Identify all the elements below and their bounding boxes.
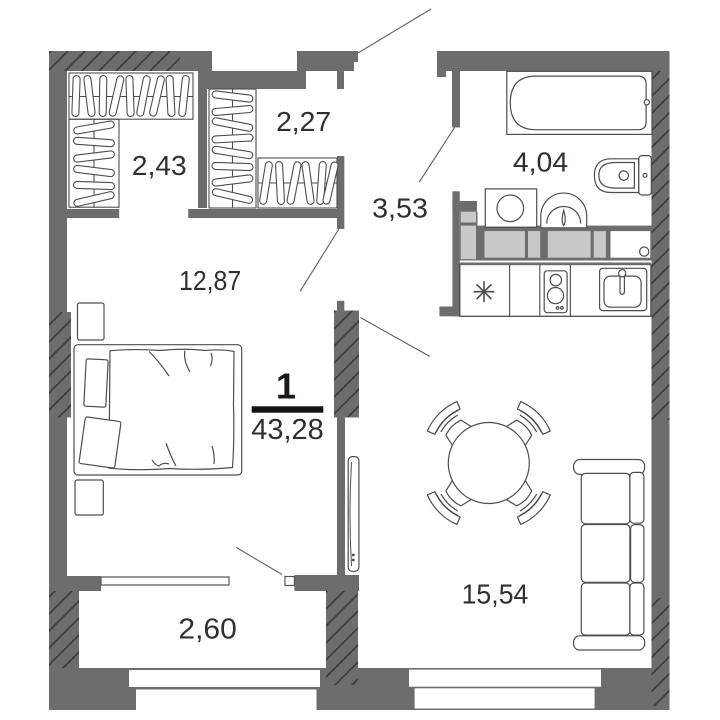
svg-text:2,60: 2,60 — [178, 614, 236, 646]
svg-text:1: 1 — [276, 365, 296, 406]
svg-text:3,53: 3,53 — [372, 193, 428, 224]
svg-text:15,54: 15,54 — [462, 579, 529, 610]
svg-text:12,87: 12,87 — [179, 265, 241, 296]
svg-text:2,27: 2,27 — [276, 106, 331, 137]
svg-text:43,28: 43,28 — [251, 414, 324, 446]
svg-text:4,04: 4,04 — [513, 147, 568, 178]
svg-text:2,43: 2,43 — [132, 150, 187, 181]
